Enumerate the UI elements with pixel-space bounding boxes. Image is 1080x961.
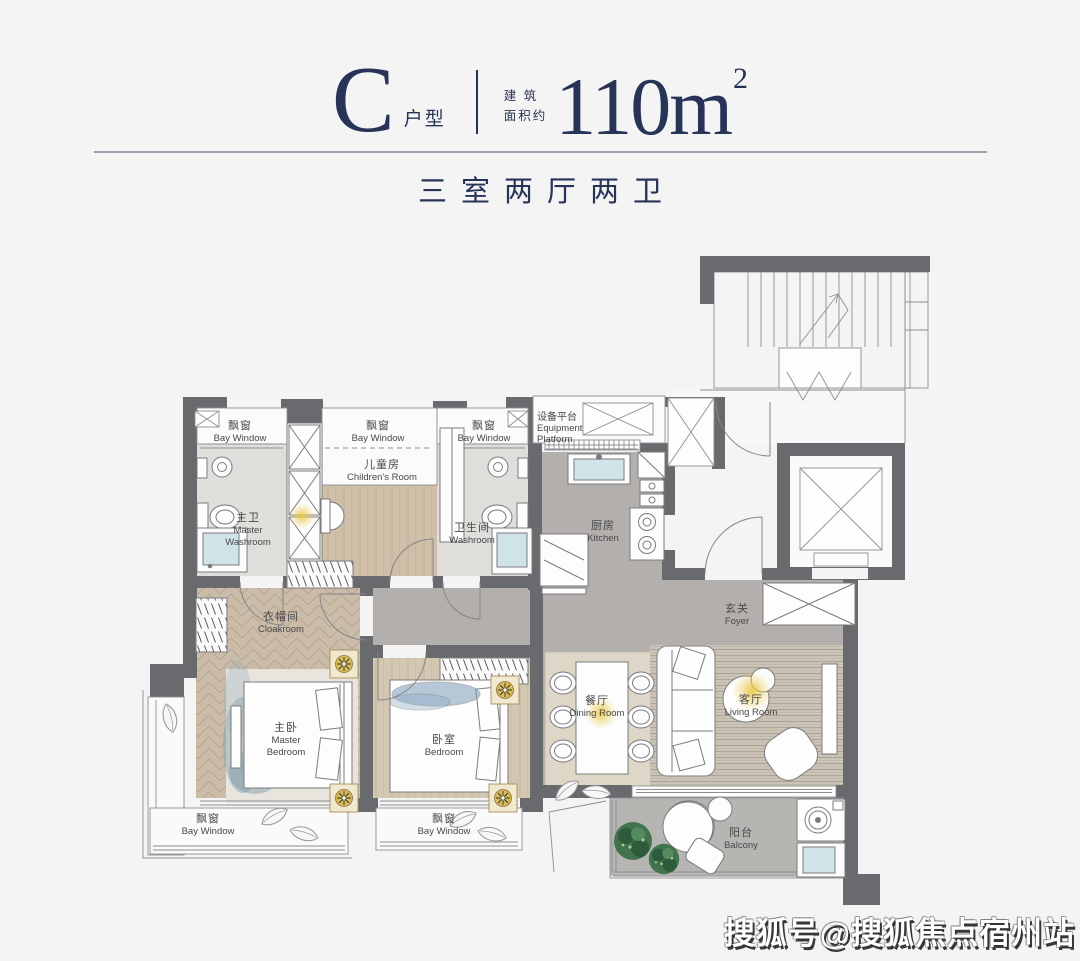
svg-text:卧室: 卧室 <box>432 732 456 746</box>
stove <box>630 508 664 560</box>
svg-text:Bay Window: Bay Window <box>458 433 511 444</box>
svg-text:客厅: 客厅 <box>739 692 763 706</box>
svg-text:设备平台: 设备平台 <box>537 410 577 423</box>
hallway-floor <box>373 588 543 645</box>
svg-text:Balcony: Balcony <box>724 840 758 851</box>
hall-wardrobe <box>287 561 353 588</box>
label-kitchen: 厨房 Kitchen <box>587 519 619 544</box>
stair-break-line <box>800 294 848 344</box>
svg-text:主卫: 主卫 <box>236 511 260 524</box>
nightstand-ornament <box>491 676 519 704</box>
balcony-plant <box>614 822 652 860</box>
label-cloakroom: 衣帽间 Cloakroom <box>258 609 304 635</box>
svg-text:Platform: Platform <box>537 434 572 445</box>
bay-window-bottom-left <box>150 808 348 854</box>
svg-text:飘窗: 飘窗 <box>366 418 390 432</box>
svg-text:Kitchen: Kitchen <box>587 533 619 544</box>
elevator-door-gap <box>812 568 868 579</box>
svg-text:儿童房: 儿童房 <box>364 457 400 471</box>
cloakroom-wardrobe <box>196 598 227 652</box>
svg-text:Equipment: Equipment <box>537 423 583 434</box>
svg-text:Bay Window: Bay Window <box>418 826 471 837</box>
svg-text:飘窗: 飘窗 <box>228 418 252 432</box>
watermark: 搜狐号@搜狐焦点宿州站 <box>724 908 1075 953</box>
svg-text:Cloakroom: Cloakroom <box>258 624 304 635</box>
svg-text:Bedroom: Bedroom <box>425 747 464 758</box>
svg-text:Children's Room: Children's Room <box>347 472 417 483</box>
svg-text:飘窗: 飘窗 <box>472 418 496 432</box>
svg-text:衣帽间: 衣帽间 <box>263 609 299 623</box>
entry-door <box>705 517 762 574</box>
svg-text:Foyer: Foyer <box>725 616 749 627</box>
elevator-door <box>814 553 868 566</box>
shoe-cabinet <box>763 583 855 625</box>
svg-text:Washroom: Washroom <box>225 537 271 548</box>
ceiling-light-glow <box>289 503 315 529</box>
balcony-slider-window <box>632 786 836 797</box>
label-foyer: 玄关 Foyer <box>725 601 749 627</box>
svg-text:飘窗: 飘窗 <box>432 811 456 825</box>
tv-console <box>822 664 837 754</box>
svg-text:Bay Window: Bay Window <box>182 826 235 837</box>
label-washroom: 卫生间 Washroom <box>449 520 495 546</box>
svg-text:Bedroom: Bedroom <box>267 747 306 758</box>
svg-text:阳台: 阳台 <box>729 825 753 839</box>
svg-text:飘窗: 飘窗 <box>196 811 220 825</box>
svg-text:Living Room: Living Room <box>725 707 778 718</box>
svg-text:Washroom: Washroom <box>449 535 495 546</box>
sofa <box>657 646 715 776</box>
nightstand-ornament <box>330 650 358 678</box>
floorplan-page: C 户型 建 筑 面积约 110m 2 三室两厅两卫 <box>0 0 1080 961</box>
closet-column <box>287 423 322 561</box>
svg-text:Master: Master <box>233 525 262 536</box>
svg-text:Master: Master <box>271 735 300 746</box>
svg-text:Bay Window: Bay Window <box>214 433 267 444</box>
svg-text:厨房: 厨房 <box>591 519 615 532</box>
balcony-plant <box>649 844 679 874</box>
floorplan-drawing: 飘窗 Bay Window 飘窗 Bay Window 飘窗 Bay Windo… <box>0 0 1080 961</box>
svg-text:卫生间: 卫生间 <box>454 520 490 534</box>
svg-text:Bay Window: Bay Window <box>352 433 405 444</box>
nightstand-ornament <box>489 784 517 812</box>
svg-text:Dining Room: Dining Room <box>570 708 625 719</box>
svg-text:玄关: 玄关 <box>725 601 749 615</box>
svg-text:餐厅: 餐厅 <box>585 693 609 707</box>
nightstand-ornament <box>330 784 358 812</box>
svg-text:主卧: 主卧 <box>274 721 298 734</box>
